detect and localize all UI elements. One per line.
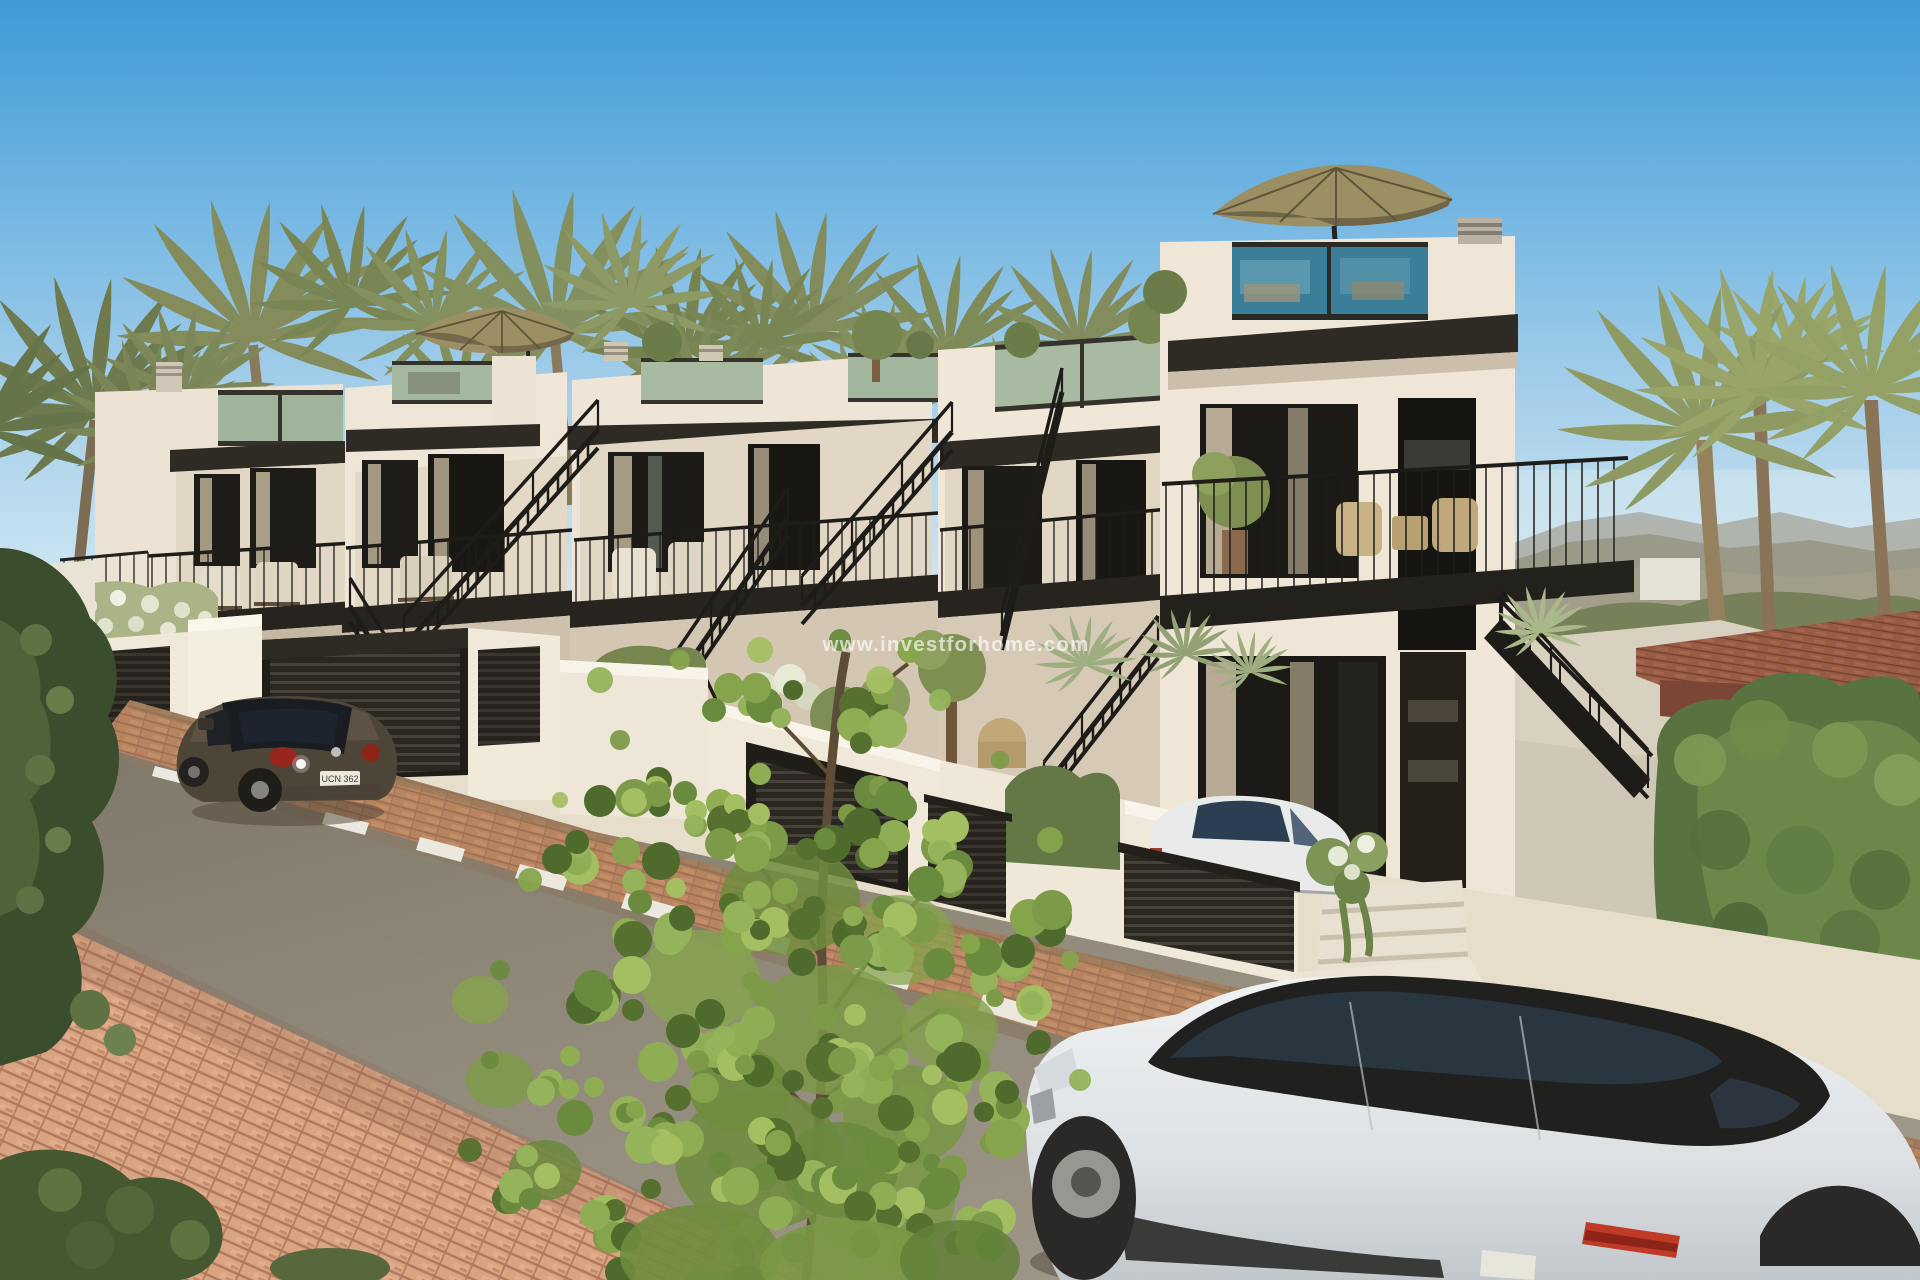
svg-text:www.investforhome.com: www.investforhome.com xyxy=(821,633,1089,656)
svg-text:UCN 362: UCN 362 xyxy=(321,774,358,784)
